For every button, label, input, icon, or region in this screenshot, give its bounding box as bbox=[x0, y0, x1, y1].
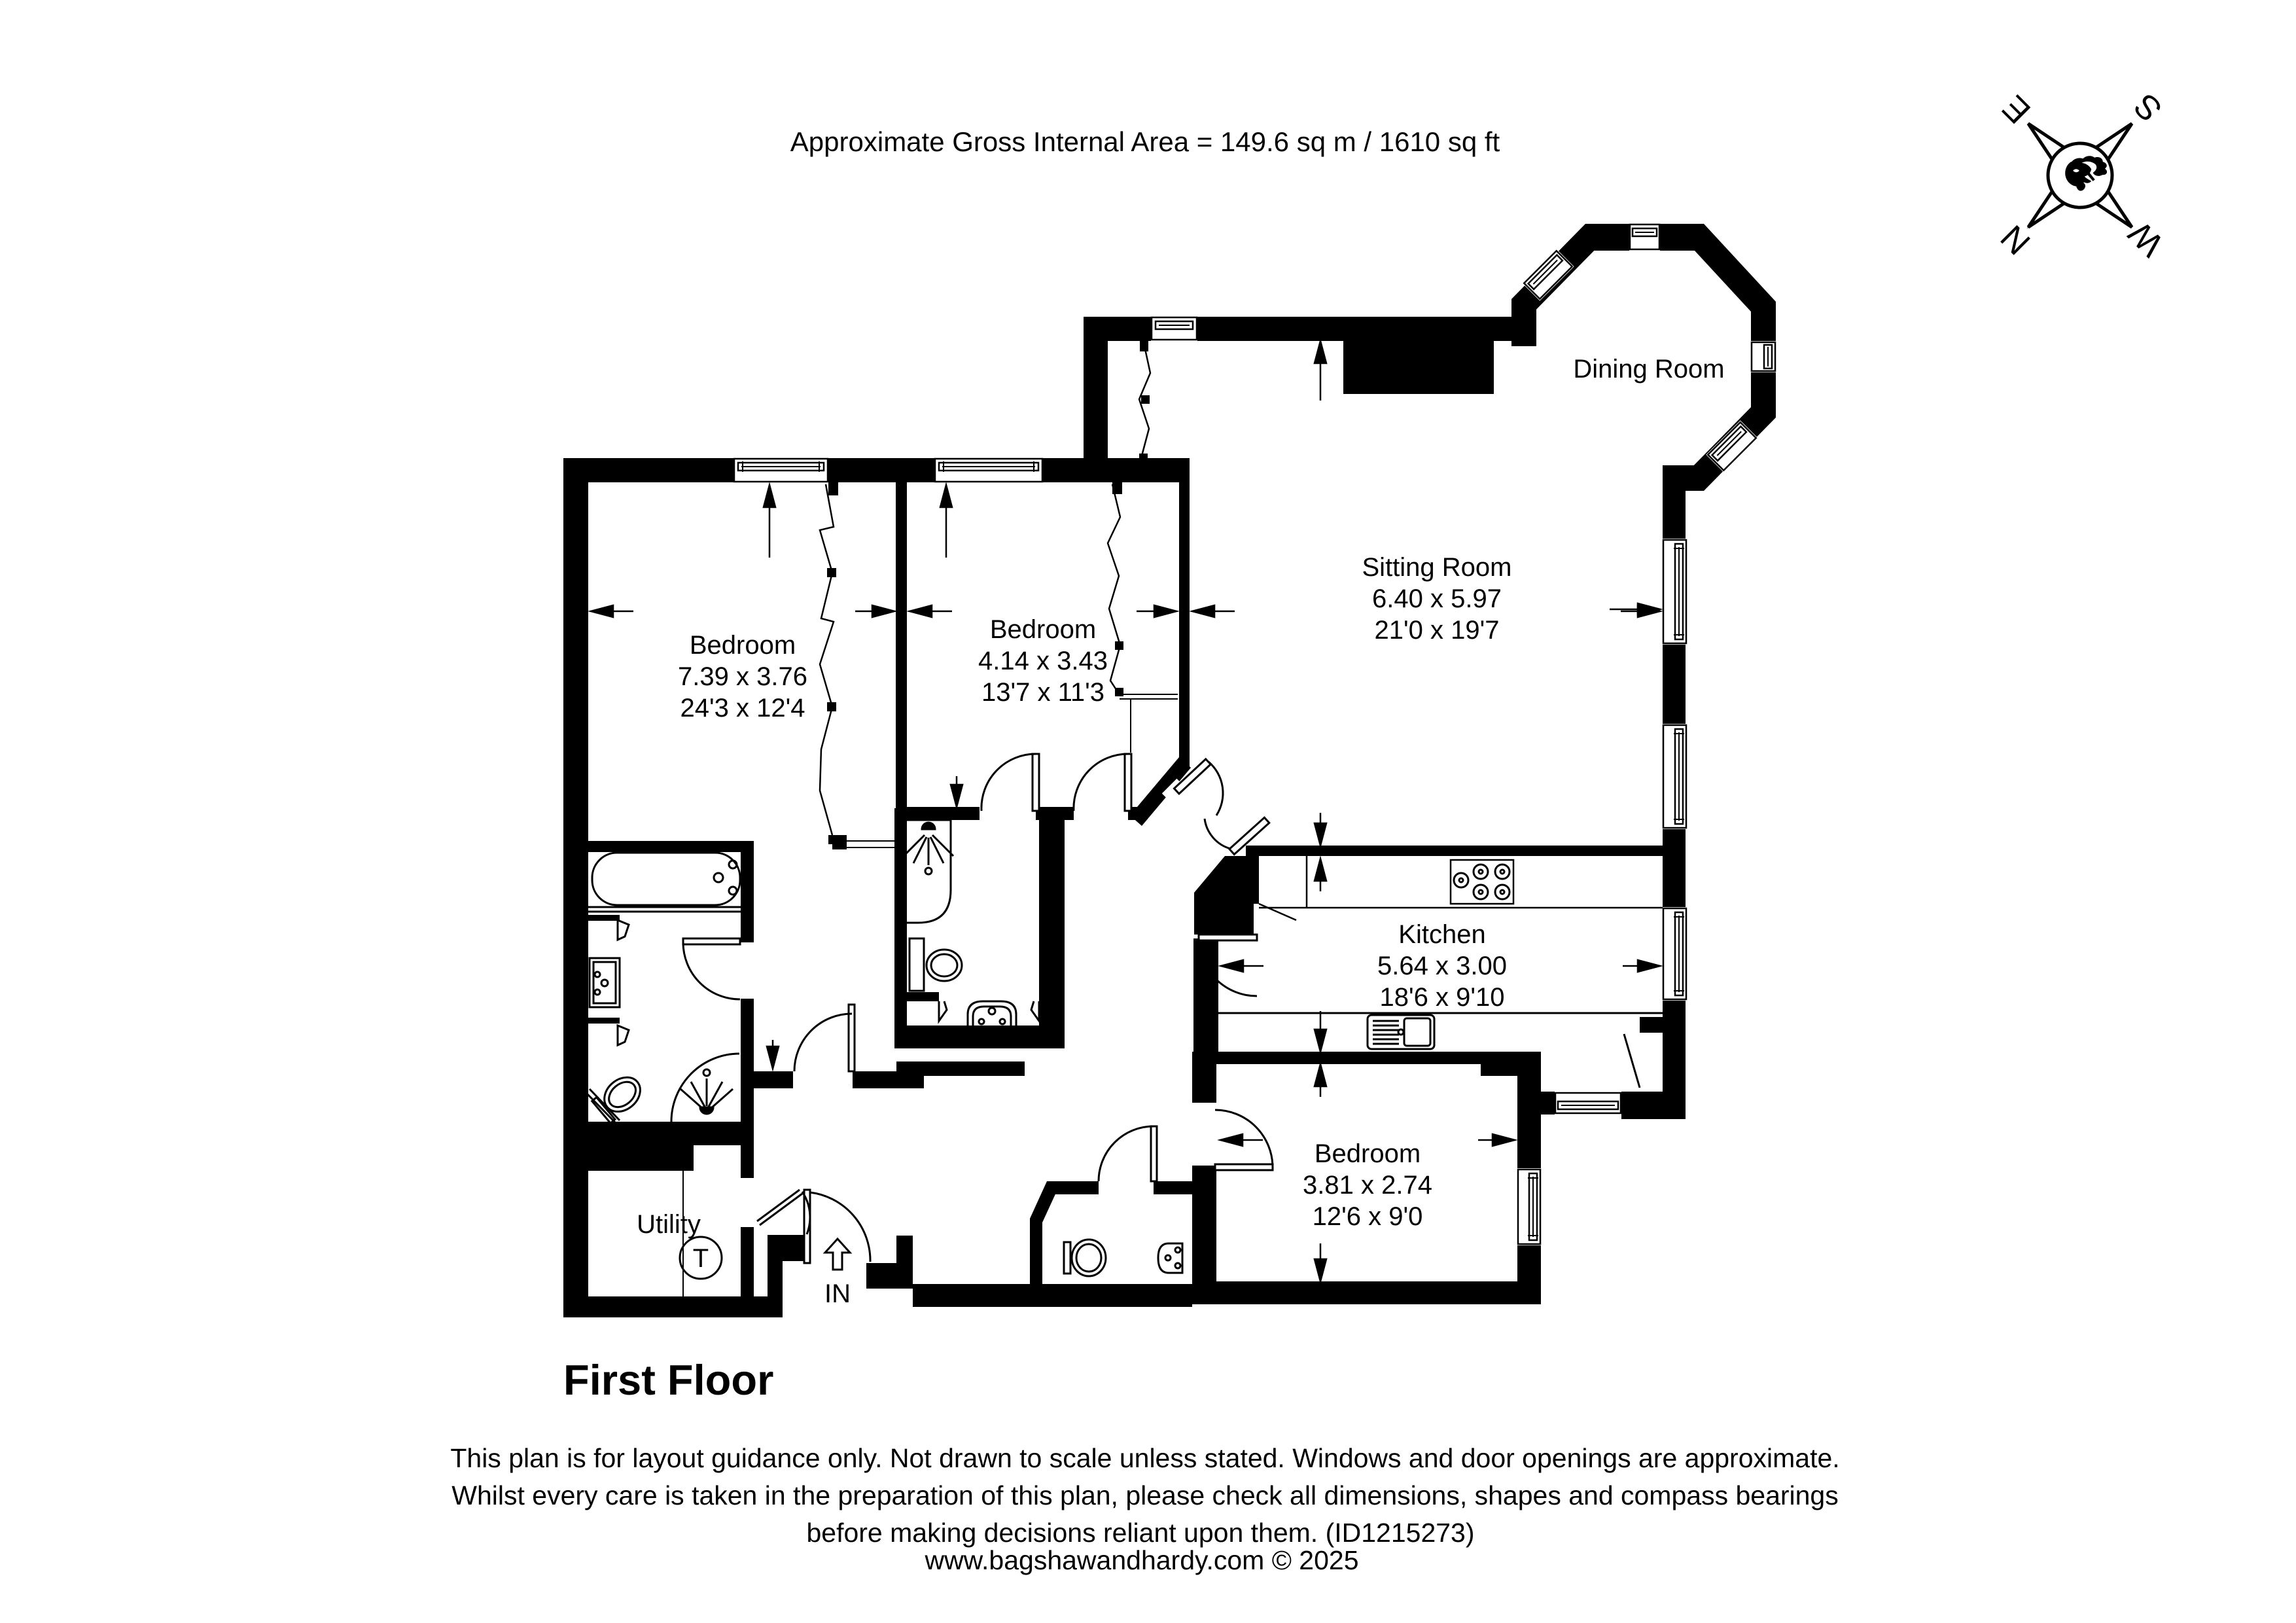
svg-text:Whilst every care is taken in: Whilst every care is taken in the prepar… bbox=[451, 1480, 1838, 1510]
svg-text:Dining Room: Dining Room bbox=[1573, 355, 1724, 383]
svg-text:Utility: Utility bbox=[637, 1210, 701, 1239]
svg-text:4.14 x 3.43: 4.14 x 3.43 bbox=[978, 647, 1108, 675]
svg-text:Kitchen: Kitchen bbox=[1398, 920, 1485, 949]
svg-text:12'6 x 9'0: 12'6 x 9'0 bbox=[1313, 1202, 1423, 1231]
svg-text:21'0 x 19'7: 21'0 x 19'7 bbox=[1375, 616, 1500, 645]
svg-text:3.81 x 2.74: 3.81 x 2.74 bbox=[1303, 1171, 1432, 1200]
svg-text:www.bagshawandhardy.com © 2025: www.bagshawandhardy.com © 2025 bbox=[924, 1545, 1358, 1575]
svg-text:18'6 x 9'10: 18'6 x 9'10 bbox=[1380, 983, 1505, 1012]
svg-text:Bedroom: Bedroom bbox=[1315, 1139, 1421, 1168]
svg-text:24'3 x 12'4: 24'3 x 12'4 bbox=[680, 694, 805, 722]
svg-text:Sitting Room: Sitting Room bbox=[1362, 553, 1512, 582]
svg-text:Bedroom: Bedroom bbox=[990, 615, 1096, 644]
svg-text:Bedroom: Bedroom bbox=[690, 631, 796, 660]
svg-text:7.39 x 3.76: 7.39 x 3.76 bbox=[678, 662, 807, 691]
svg-text:First Floor: First Floor bbox=[563, 1356, 773, 1404]
svg-text:5.64 x 3.00: 5.64 x 3.00 bbox=[1377, 952, 1507, 980]
svg-text:13'7 x 11'3: 13'7 x 11'3 bbox=[981, 678, 1104, 707]
svg-text:IN: IN bbox=[824, 1279, 851, 1308]
svg-text:This plan is for layout guidan: This plan is for layout guidance only. N… bbox=[450, 1443, 1839, 1473]
svg-text:6.40 x 5.97: 6.40 x 5.97 bbox=[1372, 584, 1502, 613]
svg-text:T: T bbox=[693, 1244, 709, 1273]
svg-text:Approximate Gross Internal Are: Approximate Gross Internal Area = 149.6 … bbox=[790, 126, 1500, 157]
svg-text:before making decisions relian: before making decisions reliant upon the… bbox=[806, 1518, 1474, 1548]
